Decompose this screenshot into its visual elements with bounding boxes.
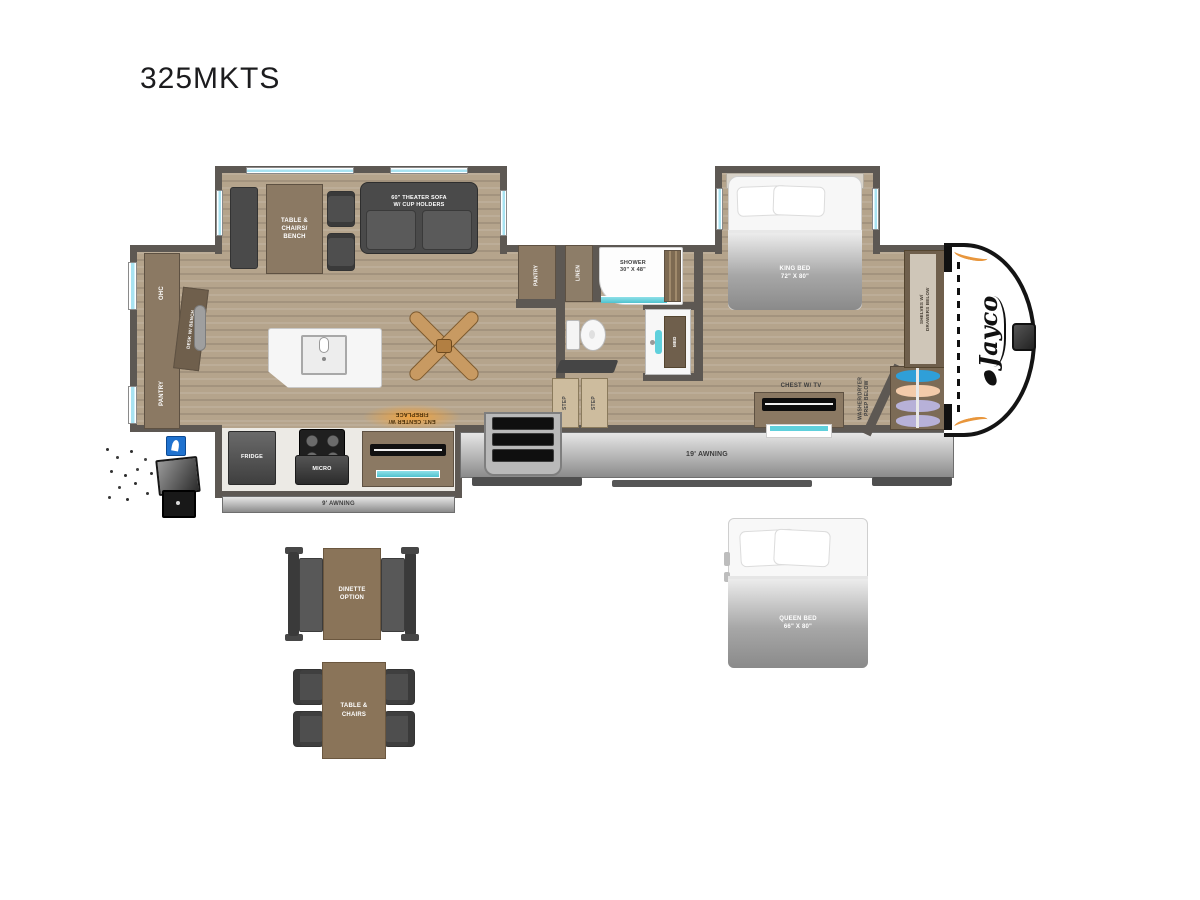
shower-slat-wall-icon xyxy=(664,250,681,302)
ent-center xyxy=(362,431,454,487)
option-chair xyxy=(384,711,415,747)
cap-corner-icon xyxy=(944,404,952,430)
page-title: 325MKTS xyxy=(140,62,280,96)
dining-chair xyxy=(327,191,355,227)
ohc-label: OHC xyxy=(144,258,180,328)
dinette-bench-seat xyxy=(299,558,323,632)
option-chair xyxy=(293,711,324,747)
hitch-icon xyxy=(1012,323,1036,351)
wall-segment xyxy=(694,252,703,381)
desk-bench xyxy=(194,305,206,351)
step-tread-icon xyxy=(492,433,554,446)
queen-bed-label: QUEEN BED 66" X 80" xyxy=(748,612,848,634)
pillow-icon xyxy=(772,185,825,217)
option-chair xyxy=(384,669,415,705)
vanity-sink-icon xyxy=(655,330,662,354)
dining-table-label: TABLE & CHAIRS/ BENCH xyxy=(266,184,323,274)
shower-label: SHOWER 30" X 48" xyxy=(604,254,662,280)
dinette-option-label: DINETTE OPTION xyxy=(323,548,381,640)
sofa-seat xyxy=(422,210,472,250)
cap-seam-icon xyxy=(957,262,960,412)
toilet-tank-icon xyxy=(566,320,580,350)
rear-window-icon xyxy=(128,262,137,310)
eagle-icon xyxy=(983,369,998,387)
slide-window-icon xyxy=(390,167,468,174)
dining-chair xyxy=(327,233,355,271)
platform-accent-icon xyxy=(770,426,828,431)
dinette-bench-cap-icon xyxy=(401,547,419,554)
step-tread-icon xyxy=(492,449,554,462)
chest-label: CHEST W/ TV xyxy=(758,381,844,391)
dinette-bench-back xyxy=(405,552,416,636)
awning-arm-icon xyxy=(472,477,582,486)
awning-9-label: 9' AWNING xyxy=(222,496,455,513)
step-tread-icon xyxy=(492,417,554,430)
sofa-seat xyxy=(366,210,416,250)
bath-mat-icon xyxy=(556,360,619,373)
slide-window-icon xyxy=(500,190,507,236)
fridge-label: FRIDGE xyxy=(228,431,276,485)
dinette-bench-back xyxy=(288,552,299,636)
table-chairs-label: TABLE & CHAIRS xyxy=(322,662,386,759)
king-bed-label: KING BED 72" X 80" xyxy=(738,258,852,288)
hall-pantry-label: PANTRY xyxy=(518,247,556,303)
pillow-icon xyxy=(773,529,831,568)
floorplan-canvas: 325MKTS OHC PANTRY DESK W/ BENCH ENT. CE… xyxy=(0,0,1200,900)
microwave-label: MICRO xyxy=(295,455,349,485)
toilet-bowl-icon xyxy=(589,330,595,339)
dinette-bench-cap-icon xyxy=(401,634,419,641)
fan-hub-icon xyxy=(436,339,452,353)
awning-arm-icon xyxy=(872,477,952,486)
theater-sofa-label: 60" THEATER SOFA W/ CUP HOLDERS xyxy=(364,188,474,216)
step-2-label: STEP xyxy=(581,380,608,426)
vanity-faucet-icon xyxy=(650,340,655,345)
slide-window-icon xyxy=(246,167,354,174)
brand-logo: Jayco xyxy=(965,281,1015,401)
brand-logo-text: Jayco xyxy=(974,296,1006,367)
slide-window-icon xyxy=(716,188,723,230)
dinette-bench-seat xyxy=(381,558,405,632)
option-chair xyxy=(293,669,324,705)
slide-window-icon xyxy=(872,188,879,230)
tv-glint-icon xyxy=(374,449,442,451)
storage-box-dot-icon xyxy=(176,501,180,505)
wall-segment xyxy=(516,299,560,308)
rear-pantry-label: PANTRY xyxy=(144,360,180,426)
faucet-icon xyxy=(319,337,329,353)
closet-rail-icon xyxy=(916,368,919,428)
med-label: MED xyxy=(664,318,686,366)
dining-bench xyxy=(230,187,258,269)
rear-window-icon xyxy=(128,386,137,424)
wall-segment xyxy=(556,245,565,305)
drain-icon xyxy=(322,357,326,361)
linen-label: LINEN xyxy=(565,247,593,300)
bed-tab-icon xyxy=(724,552,730,566)
debris-dots-icon xyxy=(106,448,109,451)
shelves-label: SHELVES W/ DRAWERS BELOW xyxy=(904,252,946,366)
cap-corner-icon xyxy=(944,246,952,272)
fireplace-glass-icon xyxy=(376,470,440,478)
slide-window-icon xyxy=(216,190,223,236)
tv-glint-icon xyxy=(765,403,833,405)
ent-center-label: ENT. CENTER W/ FIREPLACE xyxy=(366,406,458,428)
shower-threshold-icon xyxy=(601,296,667,303)
awning-arm-icon xyxy=(612,480,812,487)
